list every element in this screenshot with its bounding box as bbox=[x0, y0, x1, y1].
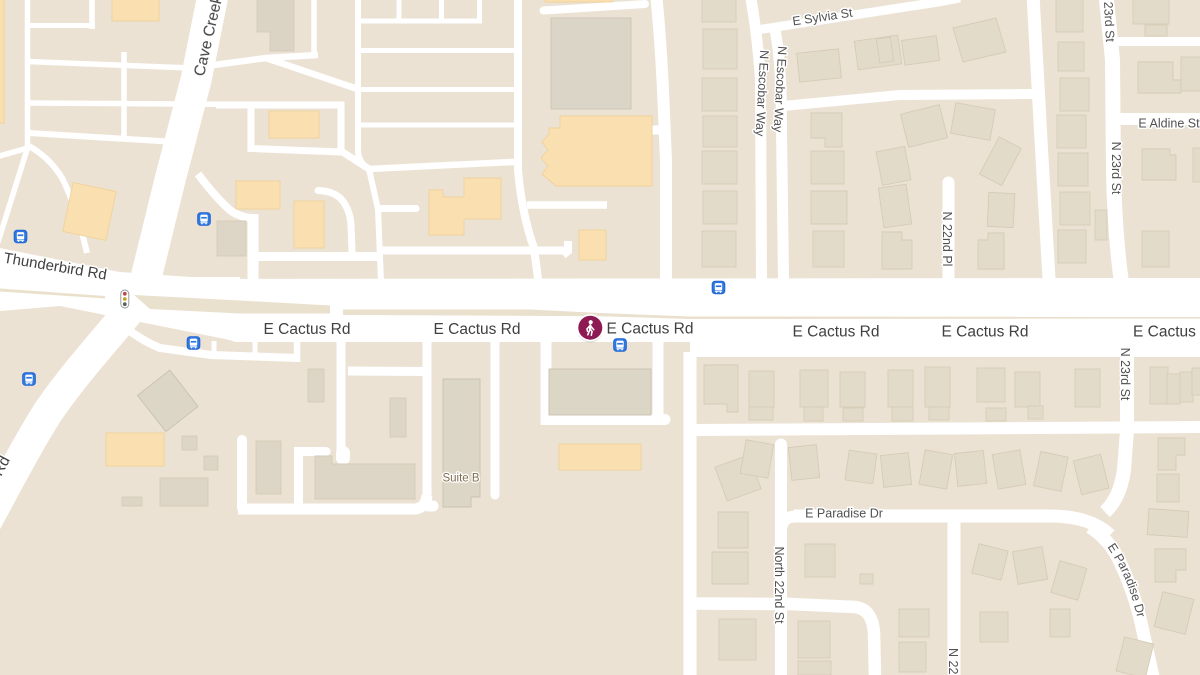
svg-text:E Paradise Dr: E Paradise Dr bbox=[805, 507, 883, 521]
svg-text:E Cactus Rd: E Cactus Rd bbox=[606, 321, 693, 338]
svg-text:E Cactus Rd: E Cactus Rd bbox=[792, 324, 879, 341]
svg-text:E Aldine St: E Aldine St bbox=[1138, 117, 1200, 131]
svg-text:E Cactus Rd: E Cactus Rd bbox=[941, 324, 1028, 341]
svg-text:E Cactus R: E Cactus R bbox=[1133, 324, 1200, 341]
svg-text:N 23rd St: N 23rd St bbox=[1109, 142, 1123, 195]
svg-text:N 22nd St: N 22nd St bbox=[946, 648, 960, 675]
svg-text:E Cactus Rd: E Cactus Rd bbox=[433, 321, 520, 338]
svg-text:N 23rd St: N 23rd St bbox=[1118, 348, 1132, 401]
svg-text:23rd St: 23rd St bbox=[1101, 1, 1117, 43]
svg-text:E Cactus Rd: E Cactus Rd bbox=[263, 321, 350, 338]
svg-text:N 22nd Pl: N 22nd Pl bbox=[940, 212, 954, 267]
svg-text:North 22nd St: North 22nd St bbox=[772, 546, 786, 624]
svg-text:Suite B: Suite B bbox=[442, 473, 479, 485]
